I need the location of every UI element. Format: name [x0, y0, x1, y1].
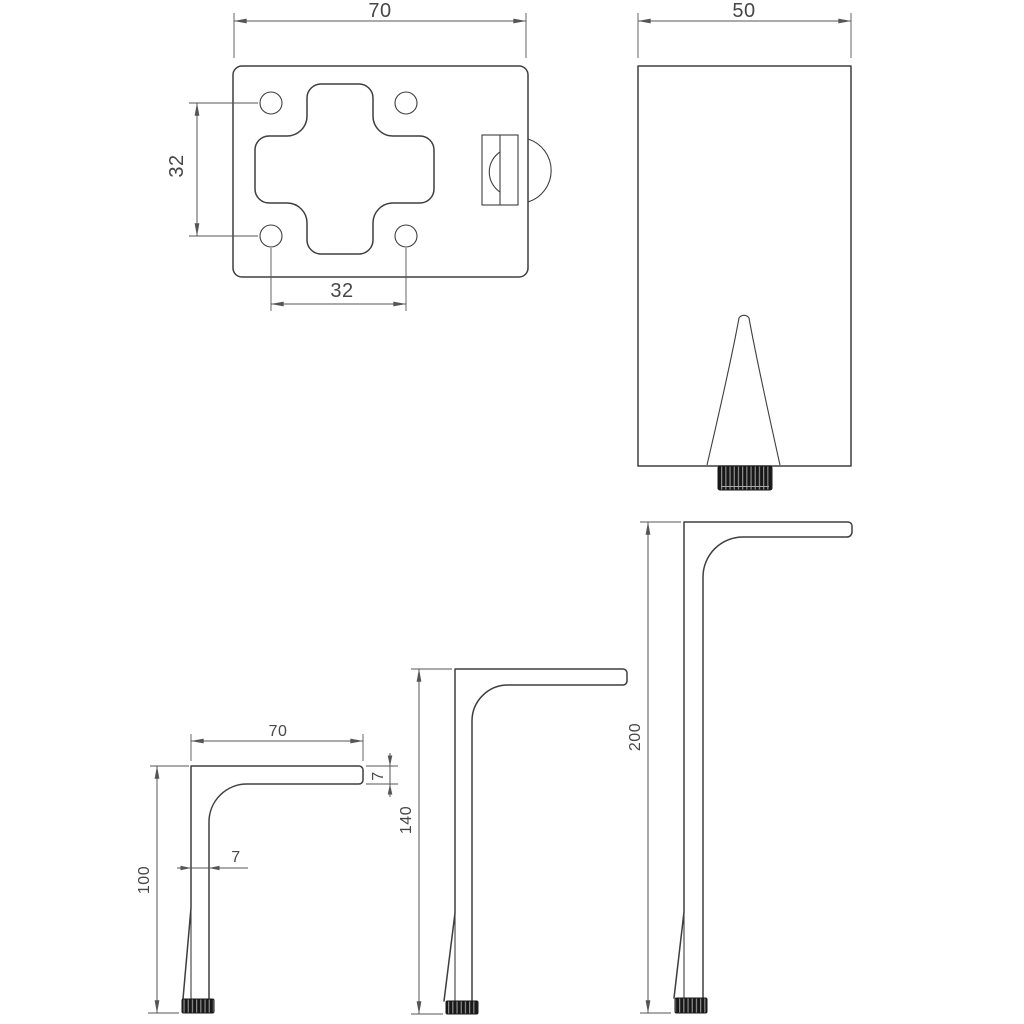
- dim-label-leg-100-arm-length: 70: [269, 723, 288, 740]
- leg-100-foot: [182, 999, 214, 1013]
- view-leg-100: 70 7 7 100: [136, 723, 398, 1013]
- mounting-hole-top-left: [260, 92, 282, 114]
- dimension-leg-100-arm-thickness: 7: [366, 753, 398, 797]
- drawing-canvas: 70 32 32 50: [0, 0, 1024, 1024]
- mounting-hole-bottom-left: [260, 225, 282, 247]
- plate-edge-bulge: [528, 139, 551, 202]
- view-leg-front: 50: [638, 0, 851, 490]
- mounting-hole-bottom-right: [395, 225, 417, 247]
- mounting-hole-top-right: [395, 92, 417, 114]
- dimension-leg-100-arm-length: 70: [191, 723, 363, 761]
- dim-label-leg-200-height: 200: [627, 723, 644, 751]
- leg-front-body: [638, 66, 851, 466]
- leg-front-taper-edge: [707, 315, 780, 465]
- leg-140-foot: [446, 1001, 478, 1014]
- dimension-leg-140-height: 140: [398, 669, 452, 1014]
- dimension-leg-200-height: 200: [627, 522, 681, 1013]
- dimension-plate-width: 70: [234, 0, 526, 58]
- dim-label-hole-pitch-horizontal: 32: [330, 280, 353, 302]
- dimension-leg-100-height: 100: [136, 766, 189, 1013]
- dimension-leg-100-post-thickness: 7: [177, 849, 248, 870]
- adjuster-window-arc: [489, 152, 500, 192]
- dim-label-leg-100-arm-thickness: 7: [370, 771, 387, 780]
- leg-200-outline: [674, 522, 852, 998]
- dim-label-leg-100-post-thickness: 7: [231, 849, 240, 866]
- dimension-leg-front-width: 50: [638, 0, 851, 58]
- leg-200-foot: [675, 998, 707, 1013]
- dim-label-leg-100-height: 100: [136, 866, 153, 894]
- leg-front-foot: [718, 466, 772, 490]
- view-plate-top: 70 32 32: [166, 0, 551, 311]
- view-leg-140: 140: [398, 669, 627, 1014]
- dim-label-plate-width: 70: [368, 0, 391, 22]
- cross-cutout: [255, 84, 434, 254]
- technical-drawing-page: 70 32 32 50: [0, 0, 1024, 1024]
- dimension-hole-pitch-vertical: 32: [166, 103, 258, 236]
- dim-label-leg-140-height: 140: [398, 806, 415, 834]
- view-leg-200: 200: [627, 522, 852, 1013]
- leg-100-outline: [183, 766, 363, 999]
- leg-140-outline: [444, 669, 627, 1001]
- dim-label-hole-pitch-vertical: 32: [166, 154, 188, 177]
- dimension-hole-pitch-horizontal: 32: [271, 248, 406, 311]
- dim-label-leg-front-width: 50: [732, 0, 755, 22]
